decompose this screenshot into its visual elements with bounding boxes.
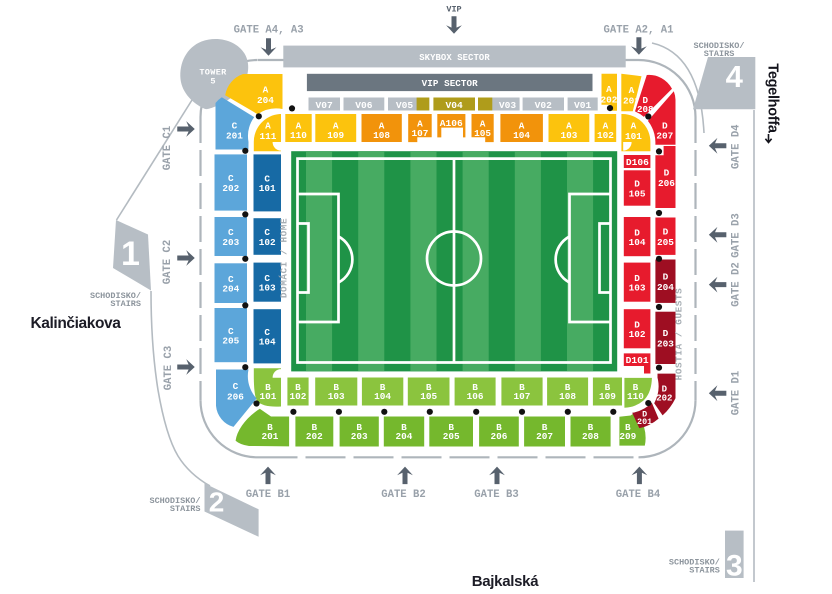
svg-text:SKYBOX SECTOR: SKYBOX SECTOR — [419, 53, 490, 63]
svg-text:Bajkalská: Bajkalská — [472, 573, 539, 590]
svg-text:STAIRS: STAIRS — [704, 49, 735, 59]
svg-text:STAIRS: STAIRS — [689, 565, 720, 575]
svg-text:201: 201 — [637, 417, 652, 427]
svg-text:203: 203 — [287, 94, 304, 105]
svg-text:D: D — [663, 328, 669, 339]
svg-text:105: 105 — [420, 391, 437, 402]
svg-text:203: 203 — [657, 339, 674, 350]
svg-text:105: 105 — [474, 128, 491, 139]
svg-text:207: 207 — [536, 431, 553, 442]
svg-text:102: 102 — [259, 237, 276, 248]
svg-text:104: 104 — [629, 237, 646, 248]
svg-text:102: 102 — [629, 329, 646, 340]
svg-text:202: 202 — [306, 431, 323, 442]
svg-text:VIP: VIP — [446, 5, 461, 15]
svg-text:103: 103 — [560, 130, 577, 141]
svg-text:A: A — [631, 121, 637, 132]
svg-text:209: 209 — [619, 431, 636, 442]
svg-text:2: 2 — [209, 487, 225, 518]
svg-text:GATE C1: GATE C1 — [162, 126, 174, 171]
svg-text:A106: A106 — [440, 118, 463, 129]
svg-text:A: A — [606, 84, 612, 95]
svg-text:Kalinčiakova: Kalinčiakova — [31, 315, 122, 332]
svg-text:GATE B2: GATE B2 — [381, 489, 426, 501]
svg-text:104: 104 — [374, 391, 391, 402]
svg-text:GATE B1: GATE B1 — [246, 489, 291, 501]
svg-text:108: 108 — [559, 391, 576, 402]
svg-text:STAIRS: STAIRS — [110, 299, 141, 309]
svg-text:V06: V06 — [355, 100, 373, 111]
svg-text:203: 203 — [222, 237, 239, 248]
svg-text:D: D — [663, 272, 669, 283]
svg-text:205: 205 — [222, 335, 239, 346]
svg-text:A: A — [629, 85, 635, 96]
svg-text:204: 204 — [257, 95, 274, 106]
svg-text:204: 204 — [396, 431, 413, 442]
svg-text:1: 1 — [121, 235, 140, 273]
svg-text:STAIRS: STAIRS — [170, 504, 201, 514]
svg-text:206: 206 — [491, 431, 508, 442]
svg-text:V01: V01 — [574, 100, 592, 111]
svg-text:GATE B3: GATE B3 — [474, 489, 519, 501]
svg-text:107: 107 — [411, 128, 428, 139]
svg-text:108: 108 — [373, 130, 390, 141]
svg-text:D101: D101 — [626, 355, 649, 366]
svg-text:201: 201 — [226, 131, 243, 142]
svg-text:202: 202 — [600, 94, 617, 105]
svg-text:V02: V02 — [535, 100, 553, 111]
svg-text:204: 204 — [657, 282, 674, 293]
svg-text:106: 106 — [467, 391, 484, 402]
svg-text:V05: V05 — [396, 100, 414, 111]
svg-text:109: 109 — [327, 130, 344, 141]
svg-text:VIP SECTOR: VIP SECTOR — [422, 78, 479, 89]
svg-text:101: 101 — [625, 131, 642, 142]
svg-text:202: 202 — [222, 183, 239, 194]
svg-text:3: 3 — [726, 550, 743, 583]
svg-text:103: 103 — [629, 283, 646, 294]
svg-text:GATE A4, A3: GATE A4, A3 — [234, 24, 304, 36]
svg-text:103: 103 — [259, 283, 276, 294]
svg-text:5: 5 — [210, 76, 215, 86]
svg-text:102: 102 — [597, 130, 614, 141]
svg-text:A: A — [265, 121, 271, 132]
svg-text:4: 4 — [726, 59, 744, 94]
svg-text:HOSTIA / GUESTS: HOSTIA / GUESTS — [674, 288, 685, 381]
svg-text:109: 109 — [599, 391, 616, 402]
svg-text:208: 208 — [582, 431, 599, 442]
svg-text:208: 208 — [637, 104, 654, 115]
svg-text:GATE D3: GATE D3 — [731, 213, 743, 258]
svg-text:GATE D4: GATE D4 — [731, 124, 743, 169]
svg-text:D: D — [663, 227, 669, 238]
svg-text:202: 202 — [656, 393, 672, 403]
svg-text:111: 111 — [260, 131, 277, 142]
svg-text:V04: V04 — [446, 100, 464, 111]
svg-text:110: 110 — [290, 130, 307, 141]
svg-text:GATE D1: GATE D1 — [731, 371, 743, 416]
svg-text:GATE C2: GATE C2 — [162, 240, 174, 285]
svg-text:DOMÁCI / HOME: DOMÁCI / HOME — [279, 218, 290, 298]
svg-text:GATE A2, A1: GATE A2, A1 — [604, 24, 674, 36]
svg-text:110: 110 — [627, 391, 644, 402]
svg-text:204: 204 — [222, 284, 239, 295]
svg-text:101: 101 — [260, 391, 277, 402]
svg-text:206: 206 — [658, 178, 675, 189]
svg-text:203: 203 — [351, 431, 368, 442]
svg-text:GATE C3: GATE C3 — [163, 346, 175, 391]
svg-text:V03: V03 — [499, 100, 517, 111]
svg-text:104: 104 — [513, 130, 530, 141]
svg-text:A: A — [293, 84, 299, 95]
svg-text:A: A — [263, 84, 269, 95]
svg-text:D: D — [664, 167, 670, 178]
svg-text:104: 104 — [259, 337, 276, 348]
svg-text:Tegelhoffa: Tegelhoffa — [765, 63, 781, 133]
svg-text:D106: D106 — [626, 157, 649, 168]
svg-text:GATE D2: GATE D2 — [731, 262, 743, 307]
svg-text:206: 206 — [227, 391, 244, 402]
svg-text:207: 207 — [656, 130, 673, 141]
svg-text:103: 103 — [328, 391, 345, 402]
svg-text:V07: V07 — [316, 100, 334, 111]
svg-text:205: 205 — [657, 237, 674, 248]
svg-text:201: 201 — [262, 431, 279, 442]
svg-text:205: 205 — [443, 431, 460, 442]
svg-text:GATE B4: GATE B4 — [616, 489, 661, 501]
svg-text:105: 105 — [629, 188, 646, 199]
svg-text:101: 101 — [259, 183, 276, 194]
svg-text:C: C — [233, 381, 239, 392]
svg-text:107: 107 — [514, 391, 531, 402]
svg-text:102: 102 — [290, 391, 307, 402]
